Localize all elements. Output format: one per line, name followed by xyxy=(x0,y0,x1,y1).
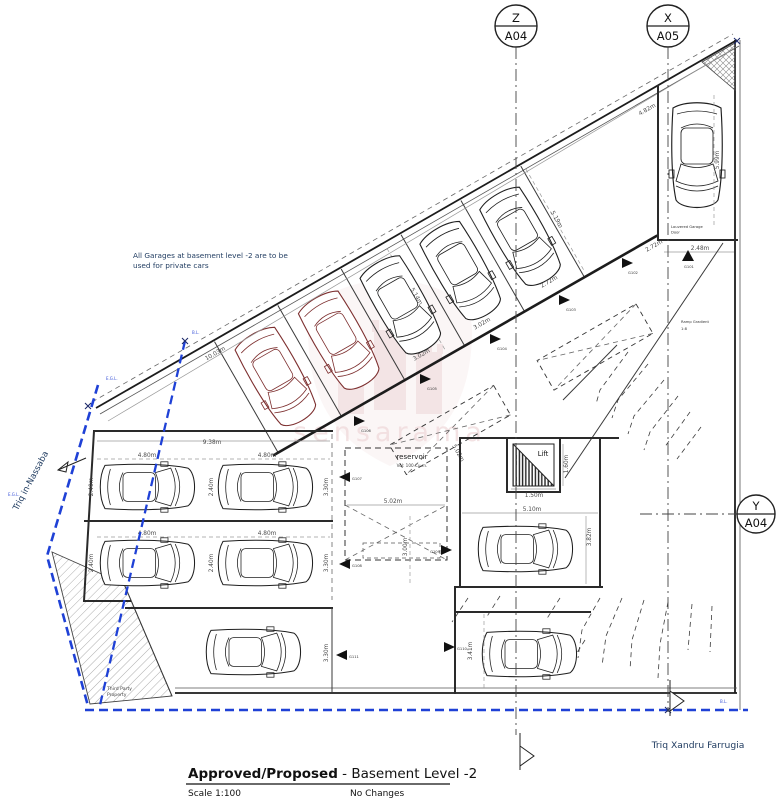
dim-stall-f-2: 3.30m xyxy=(324,553,330,572)
street-left: Triq in-Nassaba xyxy=(11,450,51,514)
dim-end-width: 2.48m xyxy=(691,246,710,252)
car-left-bottom xyxy=(206,627,300,677)
marker-z-code: A04 xyxy=(505,29,528,43)
section-marker-y: Y A04 xyxy=(640,495,775,533)
reservoir: reservoir Vol: 100 Cu.m. 5.02m xyxy=(345,448,447,560)
label-egl-1: E.G.L. xyxy=(106,376,118,381)
dim-room-width: 5.10m xyxy=(523,507,542,513)
marker-y-code: A04 xyxy=(745,516,768,530)
car-right-room xyxy=(478,524,572,574)
end-garage-stall: 5.99m 2.48m Louvered Garage Door xyxy=(658,86,737,252)
note-ramp-2: 1:8 xyxy=(681,327,688,331)
lift-label: Lift xyxy=(538,450,549,458)
car-left-4 xyxy=(218,538,312,588)
note-third-party-1: Third Party xyxy=(106,686,132,692)
dim-stall-d-3: 2.40m xyxy=(89,553,95,572)
title-changes: No Changes xyxy=(350,789,405,799)
car-bottom-right xyxy=(482,629,576,679)
dim-stall-w-2: 4.80m xyxy=(258,453,277,459)
note-garages-1: All Garages at basement level -2 are to … xyxy=(133,251,288,260)
dim-stall-f-1: 3.30m xyxy=(324,477,330,496)
car-left-3 xyxy=(100,538,194,588)
dim-stall-d-1: 2.40m xyxy=(89,477,95,496)
title-approved: Approved/Proposed xyxy=(188,766,338,782)
garage-g104: G104 xyxy=(497,347,508,351)
drawing-canvas: sensarama 5.14m 5.19m xyxy=(0,0,781,804)
car-left-1 xyxy=(100,462,194,512)
dim-boundary-seg: 10.03m xyxy=(204,346,227,362)
dim-stall-d-4: 2.40m xyxy=(209,553,215,572)
section-flag-z xyxy=(520,733,534,770)
title-block: Approved/Proposed - Basement Level -2 Sc… xyxy=(186,766,477,799)
garage-g109: G109 xyxy=(430,550,441,554)
label-bl-1: B.L. xyxy=(192,330,200,335)
title-level: - Basement Level -2 xyxy=(338,766,477,782)
title-scale: Scale 1:100 xyxy=(188,789,241,799)
dim-room-height: 3.82m xyxy=(587,527,593,546)
garage-g108: G108 xyxy=(352,564,363,568)
dim-stall-w-4: 4.80m xyxy=(258,531,277,537)
svg-text:Approved/Proposed - Basement L: Approved/Proposed - Basement Level -2 xyxy=(188,766,477,782)
garage-g111: G111 xyxy=(349,655,359,659)
dim-reservoir: 5.02m xyxy=(384,499,403,505)
marker-z-letter: Z xyxy=(512,11,520,25)
note-louvered-1: Louvered Garage xyxy=(671,225,703,229)
right-garage-room: 5.10m 3.00m 3.82m xyxy=(403,438,618,612)
dim-lift-d: 1.60m xyxy=(564,454,570,473)
label-bl-2: B.L. xyxy=(720,699,728,704)
garage-g107: G107 xyxy=(352,477,363,481)
garage-g103: G103 xyxy=(566,308,577,312)
dim-block-width: 9.38m xyxy=(203,440,222,446)
dim-lift-w: 1.50m xyxy=(525,493,544,499)
basement-plan-svg: sensarama 5.14m 5.19m xyxy=(0,0,781,804)
garage-g110: G110 xyxy=(457,647,468,651)
section-marker-x: X A05 xyxy=(647,5,689,47)
marker-x-letter: X xyxy=(664,11,672,25)
dim-lower-stall: 3.41m xyxy=(468,641,474,660)
watermark-text: sensarama xyxy=(293,417,487,448)
note-garages-2: used for private cars xyxy=(133,261,209,270)
dim-room-depth: 3.00m xyxy=(403,537,409,556)
void-stall-2 xyxy=(537,304,653,390)
dim-end-depth: 5.99m xyxy=(715,150,721,169)
garage-g106: G106 xyxy=(361,429,372,433)
marker-y-letter: Y xyxy=(751,499,760,513)
note-ramp-1: Ramp Gradient xyxy=(681,320,709,324)
street-bottom: Triq Xandru Farrugia xyxy=(651,740,745,751)
garage-g102: G102 xyxy=(628,271,638,275)
ramp-chevrons-upper xyxy=(596,352,701,459)
garage-g105: G105 xyxy=(427,387,438,391)
dim-stall-d-2: 2.40m xyxy=(209,477,215,496)
note-louvered-2: Door xyxy=(671,231,680,235)
note-third-party-2: Property xyxy=(107,692,127,698)
marker-x-code: A05 xyxy=(657,29,680,43)
car-left-2 xyxy=(218,462,312,512)
section-marker-z: Z A04 xyxy=(495,5,537,47)
dim-boundary-end: 4.82m xyxy=(638,103,657,118)
reservoir-label: reservoir xyxy=(396,453,427,461)
dim-stall-w-1: 4.80m xyxy=(138,453,157,459)
garage-g101: G101 xyxy=(684,265,694,269)
dim-stall-f-3: 3.30m xyxy=(324,643,330,662)
